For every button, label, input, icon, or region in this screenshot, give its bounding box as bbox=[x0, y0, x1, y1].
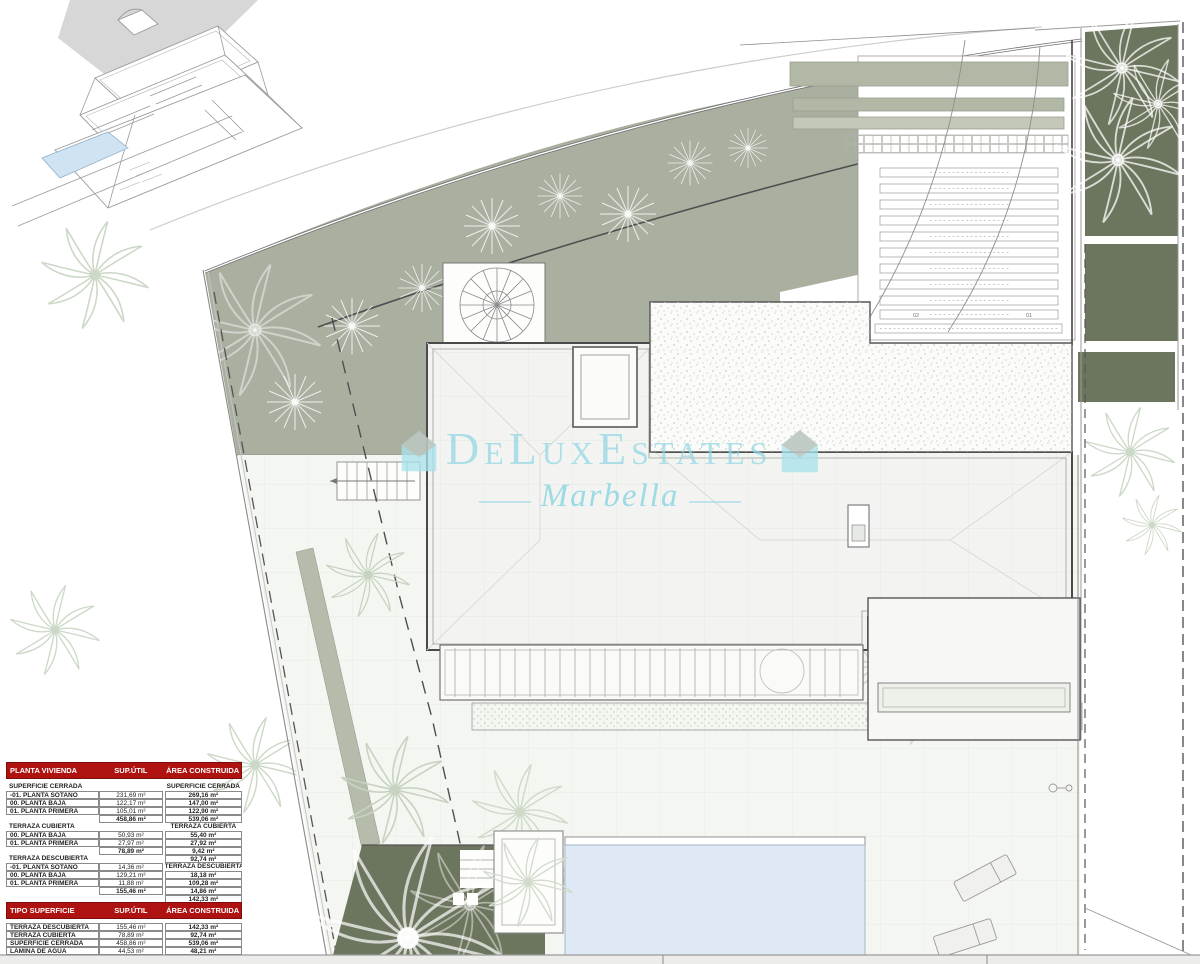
table-cell: 155,46 m² bbox=[99, 923, 162, 931]
table-cell: TERRAZA DESCUBIERTA bbox=[165, 863, 242, 871]
table-row: -01. PLANTA SÓTANO14,36 m²TERRAZA DESCUB… bbox=[6, 863, 242, 871]
table-cell: SUPERFICIE CERRADA bbox=[6, 783, 99, 791]
table-cell: -01. PLANTA SÓTANO bbox=[6, 791, 99, 799]
table-cell: TERRAZA DESCUBIERTA bbox=[6, 923, 99, 931]
table-cell: 44,53 m² bbox=[99, 947, 162, 955]
table-cell: 01. PLANTA PRIMERA bbox=[6, 807, 99, 815]
table-cell: 50,93 m² bbox=[99, 831, 162, 839]
tipo-superficie-table: TIPO SUPERFICIE SUP.ÚTIL ÁREA CONSTRUIDA… bbox=[6, 902, 242, 955]
table-cell: 105,01 m² bbox=[99, 807, 162, 815]
table-rows: SUPERFICIE CERRADASUPERFICIE CERRADA-01.… bbox=[6, 783, 242, 903]
table-cell: 78,89 m² bbox=[99, 847, 162, 855]
table-cell: TERRAZA CUBIERTA bbox=[165, 823, 242, 831]
table-cell: 231,69 m² bbox=[99, 791, 162, 799]
table-cell: SUPERFICIE CERRADA bbox=[165, 783, 242, 791]
col-header: ÁREA CONSTRUIDA bbox=[164, 766, 241, 775]
table-cell bbox=[6, 887, 99, 895]
table-cell: 55,40 m² bbox=[165, 831, 242, 839]
table-cell: 155,46 m² bbox=[99, 887, 162, 895]
table-row: 78,89 m²9,42 m² bbox=[6, 847, 242, 855]
table-cell: 129,21 m² bbox=[99, 871, 162, 879]
table-cell: 00. PLANTA BAJA bbox=[6, 831, 99, 839]
swimming-pool bbox=[565, 845, 865, 955]
villa-3d-sketch bbox=[12, 0, 302, 226]
table-row: 00. PLANTA BAJA50,93 m²55,40 m² bbox=[6, 831, 242, 839]
table-cell: 142,33 m² bbox=[165, 923, 242, 931]
table-cell: 14,36 m² bbox=[99, 863, 162, 871]
table-row: TERRAZA DESCUBIERTA155,46 m²142,33 m² bbox=[6, 923, 242, 931]
table-cell: 458,86 m² bbox=[99, 939, 162, 947]
table-cell: LÁMINA DE AGUA bbox=[6, 947, 99, 955]
table-cell: 27,97 m² bbox=[99, 839, 162, 847]
table-cell bbox=[6, 815, 99, 823]
table-row: TERRAZA CUBIERTATERRAZA CUBIERTA bbox=[6, 823, 242, 831]
table-cell: 92,74 m² bbox=[165, 931, 242, 939]
table-cell bbox=[99, 783, 162, 791]
table-cell: 92,74 m² bbox=[165, 855, 242, 863]
table-cell: 18,18 m² bbox=[165, 871, 242, 879]
table-cell: TERRAZA CUBIERTA bbox=[6, 931, 99, 939]
col-header: TIPO SUPERFICIE bbox=[7, 906, 99, 915]
col-header: PLANTA VIVIENDA bbox=[7, 766, 99, 775]
table-row: TERRAZA CUBIERTA78,89 m²92,74 m² bbox=[6, 931, 242, 939]
bottom-edge-band bbox=[0, 955, 1200, 964]
table-row: 01. PLANTA PRIMERA27,97 m²27,92 m² bbox=[6, 839, 242, 847]
table-cell: 01. PLANTA PRIMERA bbox=[6, 839, 99, 847]
table-row: 00. PLANTA BAJA122,17 m²147,00 m² bbox=[6, 799, 242, 807]
table-row: 01. PLANTA PRIMERA105,01 m²122,90 m² bbox=[6, 807, 242, 815]
table-cell: 109,28 m² bbox=[165, 879, 242, 887]
planta-vivienda-table: PLANTA VIVIENDA SUP.ÚTIL ÁREA CONSTRUIDA… bbox=[6, 762, 242, 903]
table-cell: TERRAZA CUBIERTA bbox=[6, 823, 99, 831]
table-cell: 458,86 m² bbox=[99, 815, 162, 823]
table-cell: 269,16 m² bbox=[165, 791, 242, 799]
table-cell: 122,90 m² bbox=[165, 807, 242, 815]
table-header: PLANTA VIVIENDA SUP.ÚTIL ÁREA CONSTRUIDA bbox=[6, 762, 242, 779]
spiral-staircase bbox=[443, 263, 545, 347]
table-cell bbox=[99, 855, 162, 863]
table-row: SUPERFICIE CERRADA458,86 m²539,06 m² bbox=[6, 939, 242, 947]
table-row: SUPERFICIE CERRADASUPERFICIE CERRADA bbox=[6, 783, 242, 791]
col-header: SUP.ÚTIL bbox=[99, 766, 162, 775]
table-cell: 122,17 m² bbox=[99, 799, 162, 807]
table-cell: 14,86 m² bbox=[165, 887, 242, 895]
table-row: TERRAZA DESCUBIERTA92,74 m² bbox=[6, 855, 242, 863]
col-header: SUP.ÚTIL bbox=[99, 906, 162, 915]
table-cell: 11,88 m² bbox=[99, 879, 162, 887]
table-row: 155,46 m²14,86 m² bbox=[6, 887, 242, 895]
site-plan-page: 02 01 bbox=[0, 0, 1200, 964]
ramp-level-label-02: 02 bbox=[913, 313, 919, 319]
table-row: 00. PLANTA BAJA129,21 m²18,18 m² bbox=[6, 871, 242, 879]
table-cell: SUPERFICIE CERRADA bbox=[6, 939, 99, 947]
table-cell bbox=[6, 847, 99, 855]
table-cell: -01. PLANTA SÓTANO bbox=[6, 863, 99, 871]
skylight bbox=[573, 347, 637, 427]
col-header: ÁREA CONSTRUIDA bbox=[164, 906, 241, 915]
ramp-level-label-01: 01 bbox=[1026, 313, 1032, 319]
table-cell: 539,06 m² bbox=[165, 939, 242, 947]
table-cell: TERRAZA DESCUBIERTA bbox=[6, 855, 99, 863]
table-header: TIPO SUPERFICIE SUP.ÚTIL ÁREA CONSTRUIDA bbox=[6, 902, 242, 919]
table-row: LÁMINA DE AGUA44,53 m²48,21 m² bbox=[6, 947, 242, 955]
table-cell: 00. PLANTA BAJA bbox=[6, 799, 99, 807]
table-cell bbox=[99, 823, 162, 831]
table-cell: 78,89 m² bbox=[99, 931, 162, 939]
corner-diagonal-line bbox=[1085, 908, 1198, 958]
table-row: -01. PLANTA SÓTANO231,69 m²269,16 m² bbox=[6, 791, 242, 799]
table-row: 458,86 m²539,06 m² bbox=[6, 815, 242, 823]
table-cell: 9,42 m² bbox=[165, 847, 242, 855]
table-cell: 01. PLANTA PRIMERA bbox=[6, 879, 99, 887]
table-cell: 00. PLANTA BAJA bbox=[6, 871, 99, 879]
table-cell: 147,00 m² bbox=[165, 799, 242, 807]
table-cell: 27,92 m² bbox=[165, 839, 242, 847]
table-cell: 48,21 m² bbox=[165, 947, 242, 955]
table-rows: TERRAZA DESCUBIERTA155,46 m²142,33 m²TER… bbox=[6, 923, 242, 955]
table-cell: 539,06 m² bbox=[165, 815, 242, 823]
planter-bar bbox=[878, 683, 1070, 712]
table-row: 01. PLANTA PRIMERA11,88 m²109,28 m² bbox=[6, 879, 242, 887]
